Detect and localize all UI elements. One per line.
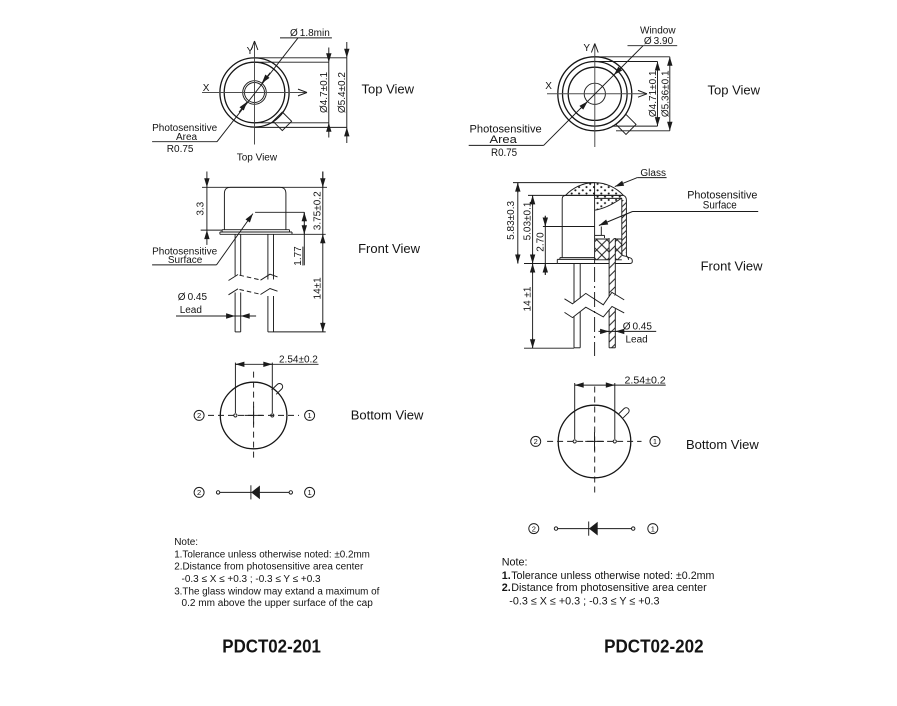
svg-text:Ø4.7±0.1: Ø4.7±0.1 bbox=[319, 72, 330, 114]
svg-text:Lead: Lead bbox=[180, 305, 202, 316]
svg-text:Ø4.71±0.1: Ø4.71±0.1 bbox=[648, 70, 659, 117]
svg-text:1.: 1. bbox=[502, 570, 511, 582]
svg-text:1.Tolerance unless otherwise n: 1.Tolerance unless otherwise noted: ±0.2… bbox=[174, 550, 370, 561]
svg-text:Tolerance unless otherwise not: Tolerance unless otherwise noted: ±0.2mm bbox=[511, 570, 714, 582]
svg-text:3.75±0.2: 3.75±0.2 bbox=[312, 191, 323, 230]
svg-text:2.Distance from photosensitive: 2.Distance from photosensitive area cent… bbox=[174, 562, 364, 573]
svg-text:-0.3 ≤ X ≤ +0.3 ; -0.3 ≤ Y ≤ +: -0.3 ≤ X ≤ +0.3 ; -0.3 ≤ Y ≤ +0.3 bbox=[509, 595, 659, 607]
svg-text:Top View: Top View bbox=[362, 82, 415, 97]
svg-text:Y: Y bbox=[583, 43, 590, 54]
svg-text:0.2 mm above the upper surface: 0.2 mm above the upper surface of the ca… bbox=[182, 598, 374, 609]
svg-text:Bottom View: Bottom View bbox=[686, 437, 759, 452]
svg-text:2.: 2. bbox=[502, 582, 511, 594]
svg-text:Distance from photosensitive a: Distance from photosensitive area center bbox=[511, 582, 707, 594]
svg-text:2.54±0.2: 2.54±0.2 bbox=[279, 355, 318, 366]
svg-text:2: 2 bbox=[197, 488, 201, 497]
svg-text:PDCT02-201: PDCT02-201 bbox=[222, 637, 321, 657]
svg-text:1: 1 bbox=[653, 437, 657, 446]
svg-text:R0.75: R0.75 bbox=[491, 147, 517, 159]
svg-text:Note:: Note: bbox=[502, 556, 528, 568]
svg-text:1: 1 bbox=[651, 524, 655, 533]
svg-text:2.54±0.2: 2.54±0.2 bbox=[625, 375, 667, 386]
svg-text:Y: Y bbox=[247, 46, 254, 57]
svg-text:2: 2 bbox=[534, 437, 538, 446]
svg-text:1.77: 1.77 bbox=[293, 246, 304, 266]
svg-text:Lead: Lead bbox=[626, 335, 648, 346]
svg-text:3.The glass window may extand: 3.The glass window may extand a maximum … bbox=[174, 586, 379, 597]
svg-text:Ø5.4±0.2: Ø5.4±0.2 bbox=[337, 72, 348, 114]
svg-text:Surface: Surface bbox=[168, 255, 203, 266]
svg-text:5.83±0.3: 5.83±0.3 bbox=[506, 201, 517, 240]
svg-text:5.03±0.1: 5.03±0.1 bbox=[522, 201, 533, 240]
svg-text:X: X bbox=[203, 83, 210, 94]
svg-text:Area: Area bbox=[490, 134, 517, 146]
svg-text:Ø 3.90: Ø 3.90 bbox=[644, 36, 674, 47]
svg-text:3.3: 3.3 bbox=[196, 201, 207, 215]
svg-text:Ø 1.8min: Ø 1.8min bbox=[290, 28, 330, 39]
svg-text:1: 1 bbox=[308, 488, 312, 497]
svg-text:Bottom View: Bottom View bbox=[351, 407, 424, 422]
svg-text:1: 1 bbox=[308, 411, 312, 420]
svg-text:Ø 0.45: Ø 0.45 bbox=[178, 292, 208, 303]
svg-text:Top View: Top View bbox=[708, 82, 761, 97]
svg-text:R0.75: R0.75 bbox=[167, 144, 194, 155]
svg-text:Ø5.36±0.1: Ø5.36±0.1 bbox=[661, 70, 672, 117]
svg-text:Top View: Top View bbox=[237, 153, 278, 164]
svg-text:X: X bbox=[545, 81, 552, 92]
svg-text:Front View: Front View bbox=[358, 241, 421, 256]
svg-text:2.70: 2.70 bbox=[535, 232, 546, 252]
svg-text:-0.3 ≤ X ≤ +0.3 ; -0.3 ≤ Y ≤ +: -0.3 ≤ X ≤ +0.3 ; -0.3 ≤ Y ≤ +0.3 bbox=[182, 574, 322, 585]
svg-text:Ø 0.45: Ø 0.45 bbox=[623, 321, 653, 332]
svg-text:Surface: Surface bbox=[703, 200, 737, 212]
svg-text:Note:: Note: bbox=[174, 537, 198, 548]
svg-text:2: 2 bbox=[532, 524, 536, 533]
svg-text:PDCT02-202: PDCT02-202 bbox=[604, 637, 704, 657]
svg-text:Window: Window bbox=[640, 25, 676, 36]
svg-text:14±1: 14±1 bbox=[312, 277, 323, 300]
svg-text:Front View: Front View bbox=[701, 258, 764, 273]
svg-text:2: 2 bbox=[197, 411, 201, 420]
svg-text:14 ±1: 14 ±1 bbox=[522, 286, 533, 311]
